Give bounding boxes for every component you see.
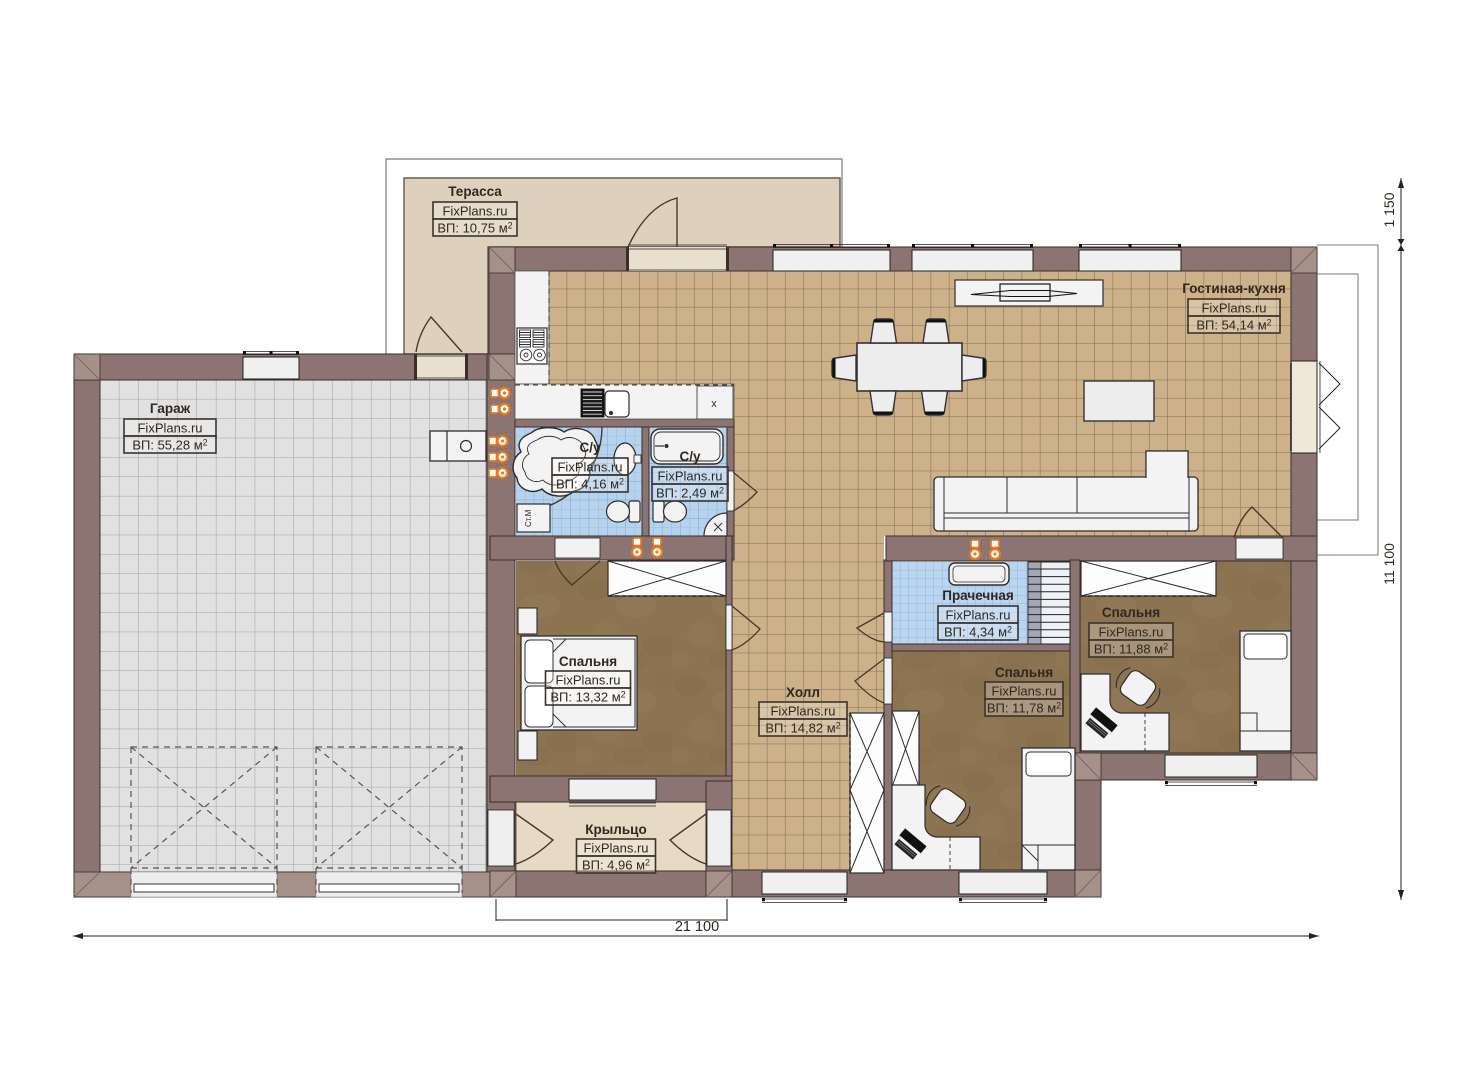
svg-text:ВП: 14,82 м2: ВП: 14,82 м2	[765, 721, 840, 736]
svg-text:ВП: 55,28 м2: ВП: 55,28 м2	[132, 438, 207, 453]
svg-text:ВП: 4,96 м2: ВП: 4,96 м2	[582, 858, 650, 873]
svg-text:Спальня: Спальня	[1102, 605, 1160, 620]
svg-text:21 100: 21 100	[675, 919, 719, 935]
svg-text:ВП: 2,49 м2: ВП: 2,49 м2	[656, 486, 724, 501]
svg-text:Гостиная-кухня: Гостиная-кухня	[1182, 281, 1285, 296]
svg-text:Гараж: Гараж	[150, 401, 191, 416]
svg-text:Крыльцо: Крыльцо	[585, 822, 646, 837]
svg-text:FixPlans.ru: FixPlans.ru	[557, 460, 622, 475]
svg-text:FixPlans.ru: FixPlans.ru	[1201, 301, 1266, 316]
svg-text:FixPlans.ru: FixPlans.ru	[991, 684, 1056, 699]
svg-text:FixPlans.ru: FixPlans.ru	[583, 841, 648, 856]
svg-text:FixPlans.ru: FixPlans.ru	[770, 704, 835, 719]
svg-text:1 150: 1 150	[1381, 192, 1397, 227]
svg-text:ВП: 4,16 м2: ВП: 4,16 м2	[556, 477, 624, 492]
svg-text:11 100: 11 100	[1381, 543, 1397, 585]
svg-text:С/у: С/у	[679, 449, 701, 464]
svg-text:FixPlans.ru: FixPlans.ru	[945, 608, 1010, 623]
svg-text:Прачечная: Прачечная	[942, 588, 1014, 603]
svg-text:Спальня: Спальня	[995, 665, 1053, 680]
svg-text:Спальня: Спальня	[559, 654, 617, 669]
svg-text:FixPlans.ru: FixPlans.ru	[657, 469, 722, 484]
svg-text:Терасса: Терасса	[448, 184, 502, 199]
svg-text:FixPlans.ru: FixPlans.ru	[442, 204, 507, 219]
svg-text:ВП: 11,78 м2: ВП: 11,78 м2	[987, 701, 1061, 716]
svg-text:ВП: 13,32 м2: ВП: 13,32 м2	[550, 690, 625, 705]
svg-text:FixPlans.ru: FixPlans.ru	[555, 673, 620, 688]
svg-text:ВП: 4,34 м2: ВП: 4,34 м2	[944, 625, 1012, 640]
svg-text:x: x	[711, 398, 717, 410]
svg-text:С/у: С/у	[579, 440, 601, 455]
svg-text:ВП: 11,88 м2: ВП: 11,88 м2	[1094, 642, 1168, 657]
svg-text:Холл: Холл	[786, 685, 820, 700]
svg-text:Ст.М: Ст.М	[524, 509, 533, 527]
svg-text:ВП: 10,75 м2: ВП: 10,75 м2	[437, 221, 512, 236]
svg-text:ВП: 54,14 м2: ВП: 54,14 м2	[1196, 318, 1271, 333]
svg-text:FixPlans.ru: FixPlans.ru	[137, 421, 202, 436]
svg-text:FixPlans.ru: FixPlans.ru	[1098, 625, 1163, 640]
